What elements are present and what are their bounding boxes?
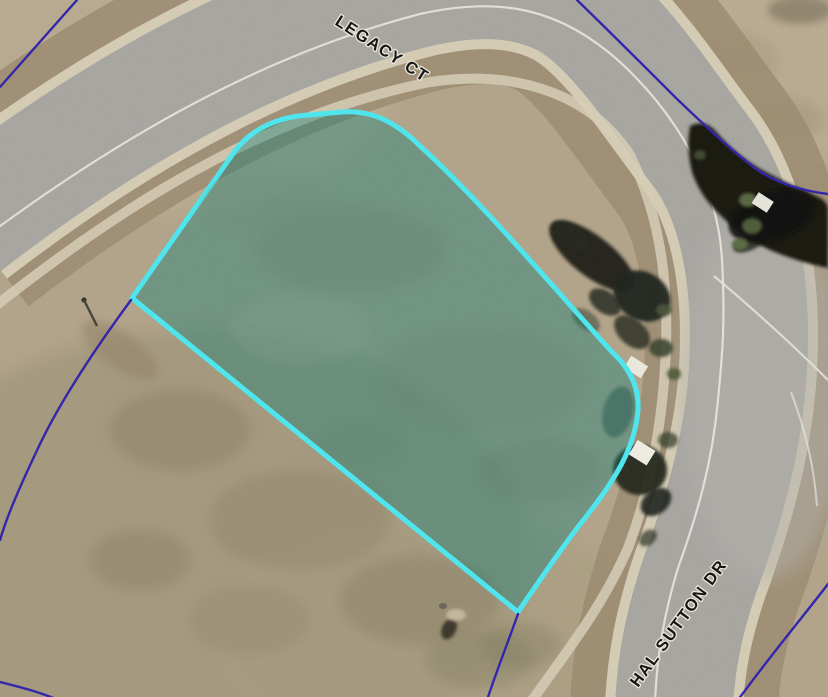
map-viewport[interactable]: LEGACY CT HAL SUTTON DR xyxy=(0,0,828,697)
aerial-map-canvas[interactable]: LEGACY CT HAL SUTTON DR xyxy=(0,0,828,697)
